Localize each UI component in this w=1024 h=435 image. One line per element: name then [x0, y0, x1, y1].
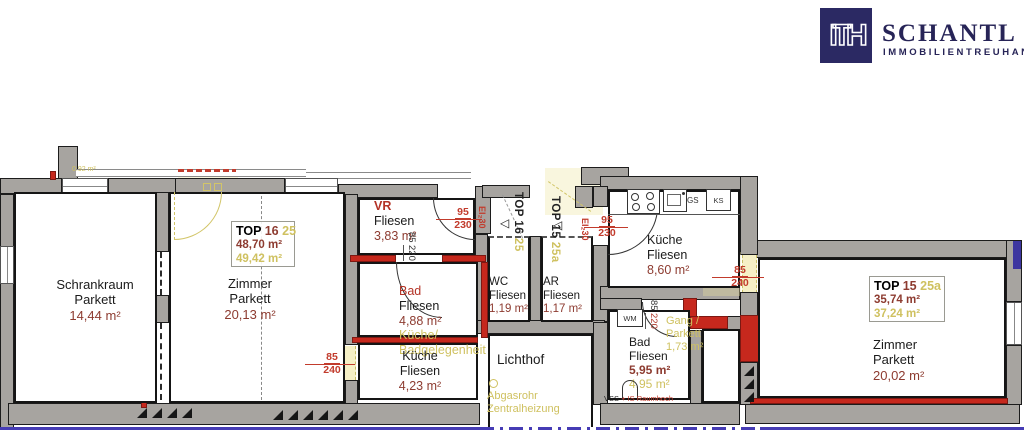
sink-basin	[667, 194, 681, 206]
door-dim-85-220: 85 220	[648, 300, 659, 329]
boundary-line-dashed	[480, 427, 760, 430]
room-area: 5,95 m²	[629, 363, 670, 377]
company-name: SCHANTL	[882, 20, 1017, 48]
room-area: 20,02 m²	[873, 368, 924, 383]
wall	[593, 186, 608, 207]
counter-line	[608, 214, 740, 215]
entrance-suffix: 25a	[549, 242, 561, 263]
entrance-suffix: 25	[512, 238, 524, 252]
tiny-area-annotation: 0.92 m²	[72, 166, 96, 173]
dim-height: 240	[323, 364, 341, 376]
dim-line	[305, 364, 355, 365]
wall	[740, 292, 758, 316]
boundary-line	[760, 427, 1024, 430]
unit-area: 48,70 m²	[236, 239, 290, 253]
vss-label: VSS	[604, 394, 619, 403]
hatch-triangle	[744, 366, 754, 376]
room-label-ar: AR Fliesen 1,17 m²	[543, 276, 582, 317]
unit-suffix: 25a	[920, 279, 941, 293]
wall	[345, 194, 358, 345]
room-floor: Fliesen	[543, 290, 582, 304]
room-floor: Fliesen	[374, 214, 416, 229]
wall	[593, 245, 608, 322]
room-floor: Fliesen	[489, 290, 528, 304]
sink-tap	[682, 192, 685, 195]
lichthof-note: Abgasrohr Zentralheizung	[487, 390, 560, 416]
room-area: 20,13 m²	[190, 307, 310, 322]
room-label-bad-top16: Bad Fliesen 4,88 m² Küche/ Badgelegenhei…	[399, 284, 486, 358]
dim-height: 220	[403, 245, 417, 261]
entrance-label-top16: TOP 16 25	[512, 192, 524, 252]
red-wall	[750, 398, 1008, 404]
room-label-wc: WC Fliesen 1,19 m²	[489, 276, 528, 317]
dim-line	[712, 277, 764, 278]
door-line-yellow	[174, 192, 175, 240]
unit-title: TOP 16 25	[236, 224, 290, 239]
hatch-triangle	[303, 410, 313, 420]
unit-box-top16: TOP 16 25 48,70 m² 49,42 m²	[231, 221, 295, 267]
burner-icon	[631, 193, 639, 201]
dim-width: 85	[324, 351, 340, 364]
dim-line	[436, 219, 482, 220]
unit-area-alt: 37,24 m²	[874, 308, 940, 322]
note-line: Abgasrohr	[487, 390, 560, 403]
door-leaf-symbol: ◁	[500, 216, 509, 230]
wall	[745, 240, 1013, 258]
window-marker	[1013, 241, 1021, 269]
entrance-title: TOP 16	[512, 192, 524, 234]
wall	[575, 186, 593, 208]
entrance-title: TOP 15	[549, 196, 561, 238]
company-logo-icon: ITH	[820, 8, 872, 63]
hatch-triangle	[744, 392, 754, 402]
dim-height: 220	[645, 313, 659, 329]
tiny-red-annotation	[178, 169, 236, 172]
washing-machine-label: WM	[617, 309, 643, 327]
room-area: 1,17 m²	[543, 303, 582, 317]
burner-icon	[647, 203, 655, 211]
dim-width: 95	[599, 214, 615, 227]
hatch-triangle	[333, 410, 343, 420]
unit-area-alt: 49,42 m²	[236, 253, 290, 267]
unit-label: TOP	[874, 279, 899, 293]
wall	[600, 176, 745, 190]
wall	[475, 320, 605, 334]
hatch-triangle	[152, 408, 162, 418]
room-floor: Parkett	[873, 352, 924, 367]
room-area: 4,88 m²	[399, 314, 486, 329]
dishwasher-label: GS	[687, 196, 699, 205]
room-label-schrankraum: Schrankraum Parkett 14,44 m²	[30, 277, 160, 323]
red-wall	[50, 171, 56, 180]
room-label-kueche-top16: Küche Fliesen 4,23 m²	[380, 349, 460, 393]
burner-icon	[646, 192, 654, 200]
unit-title: TOP 15 25a	[874, 279, 940, 294]
room-area: 1,73 m²	[666, 341, 703, 354]
room-name: AR	[543, 276, 582, 290]
wall	[530, 236, 541, 322]
room-floor: Fliesen	[629, 349, 670, 363]
room-name: Zimmer	[190, 276, 310, 291]
vss-note: + IS Raumhoch	[621, 394, 673, 403]
wall	[600, 403, 740, 425]
company-tagline: IMMOBILIENTREUHAND	[883, 47, 1024, 58]
fire-rating-label: EI₂30	[580, 218, 590, 241]
room-name: Lichthof	[497, 352, 544, 368]
hatch-triangle	[137, 408, 147, 418]
wall-dashed	[160, 323, 162, 400]
window	[1006, 302, 1022, 345]
dim-height: 240	[731, 277, 749, 289]
unit-label: TOP	[236, 224, 261, 238]
dim-width: 85	[648, 300, 659, 311]
room-name: VR	[374, 199, 416, 214]
room-label-gang: Gang / Parkett 1,73 m²	[666, 315, 703, 354]
room-name: Zimmer	[873, 337, 924, 352]
fire-rating-label: EI₂30	[477, 206, 487, 229]
note-line: Zentralheizung	[487, 403, 560, 416]
wall	[593, 322, 608, 405]
room-floor: Parkett	[190, 291, 310, 306]
red-wall	[442, 255, 486, 262]
door-dim-85-220: 85 220	[406, 232, 417, 261]
hatch-triangle	[348, 410, 358, 420]
room-alt-use: Küche/	[399, 328, 486, 343]
room-name: Bad	[629, 335, 670, 349]
sink-icon	[663, 189, 687, 212]
burner-icon	[632, 203, 640, 211]
vss-annotation: VSS + IS Raumhoch	[604, 394, 673, 403]
room-name: Küche	[647, 233, 689, 248]
room-name: Bad	[399, 284, 486, 299]
room-area: 1,19 m²	[489, 303, 528, 317]
room-floor: Fliesen	[380, 364, 460, 379]
hatch-triangle	[182, 408, 192, 418]
room-floor: Parkett	[30, 292, 160, 307]
room-name: WC	[489, 276, 528, 290]
dim-height: 230	[598, 227, 616, 239]
hatch-triangle	[273, 410, 283, 420]
wall-dashed	[160, 252, 162, 295]
room-name: Gang /	[666, 315, 703, 328]
wall	[1006, 345, 1022, 405]
window	[0, 246, 14, 284]
shaft-circle-icon	[489, 379, 498, 388]
unit-number: 15	[903, 279, 917, 293]
room-label-zimmer-top16: Zimmer Parkett 20,13 m²	[190, 276, 310, 322]
dim-width: 85	[406, 232, 417, 243]
stove-icon	[627, 189, 660, 214]
room-floor: Parkett	[666, 328, 703, 341]
room-area: 8,60 m²	[647, 263, 689, 278]
dim-width: 85	[732, 264, 748, 277]
room-label-zimmer-top15: Zimmer Parkett 20,02 m²	[873, 337, 924, 383]
room-gang	[702, 329, 740, 403]
hatch-triangle	[288, 410, 298, 420]
unit-number: 16	[265, 224, 279, 238]
wall	[155, 192, 169, 252]
unit-suffix: 25	[282, 224, 296, 238]
wall	[0, 194, 14, 430]
room-floor: Fliesen	[647, 248, 689, 263]
boundary-line	[0, 427, 480, 430]
unit-area: 35,74 m²	[874, 294, 940, 308]
dim-line	[584, 227, 628, 228]
unit-box-top15: TOP 15 25a 35,74 m² 37,24 m²	[869, 276, 945, 322]
dim-width: 95	[455, 206, 471, 219]
wall	[345, 380, 358, 405]
room-name: Schrankraum	[30, 277, 160, 292]
hatch-triangle	[318, 410, 328, 420]
wall	[745, 404, 1020, 424]
red-wall	[350, 255, 396, 262]
hatch-triangle	[744, 379, 754, 389]
room-floor: Fliesen	[399, 299, 486, 314]
wall	[740, 176, 758, 255]
entrance-label-top15: TOP 15 25a	[549, 196, 561, 263]
room-name: Küche	[380, 349, 460, 364]
wall	[8, 403, 480, 425]
hatch-triangle	[167, 408, 177, 418]
room-area: 4,23 m²	[380, 379, 460, 394]
room-label-lichthof: Lichthof	[497, 352, 544, 368]
dim-height: 230	[454, 219, 472, 231]
symbol-yellow	[203, 183, 211, 191]
room-area: 14,44 m²	[30, 308, 160, 323]
fridge-label: KS	[706, 189, 731, 211]
room-label-kueche-top15: Küche Fliesen 8,60 m²	[647, 233, 689, 277]
symbol-yellow	[214, 183, 222, 191]
